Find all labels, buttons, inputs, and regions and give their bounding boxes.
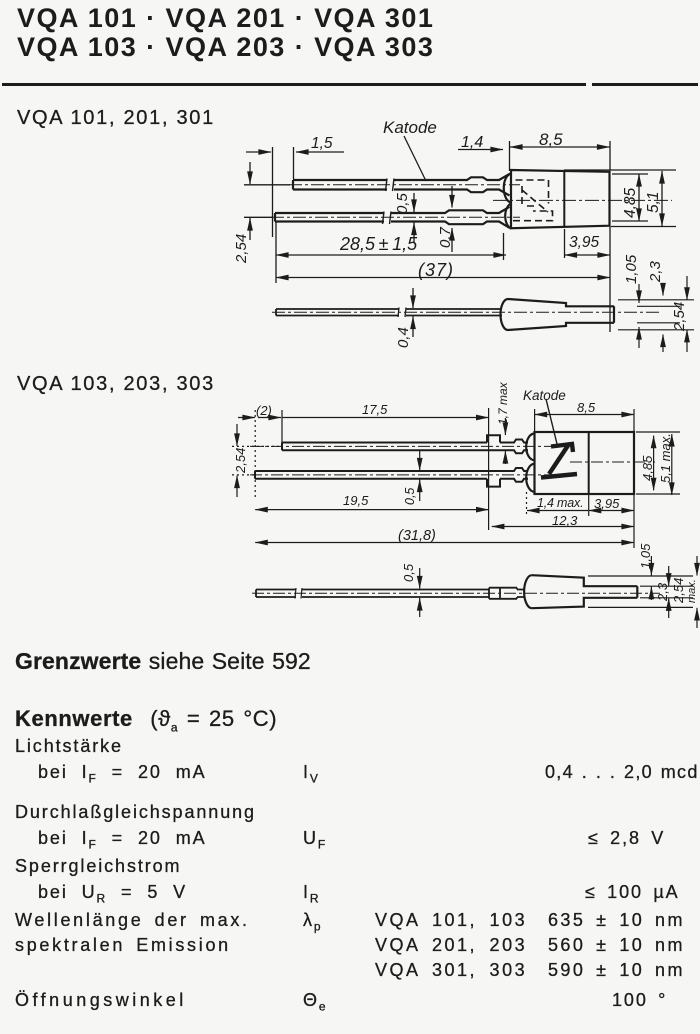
svg-text:1,05: 1,05 (623, 254, 640, 284)
svg-text:(31,8): (31,8) (398, 528, 436, 544)
svg-text:max.: max. (686, 579, 698, 603)
svg-text:2,54: 2,54 (233, 448, 248, 474)
svg-text:17,5: 17,5 (362, 402, 388, 417)
svg-text:(2): (2) (256, 403, 272, 418)
svg-text:8,5: 8,5 (539, 130, 563, 149)
svg-text:1,05: 1,05 (638, 543, 653, 569)
svg-text:(37): (37) (418, 260, 454, 280)
svg-text:19,5: 19,5 (343, 493, 369, 508)
svg-text:3,95: 3,95 (594, 496, 620, 511)
svg-text:0,5: 0,5 (394, 192, 411, 214)
svg-text:Katode: Katode (523, 388, 566, 403)
svg-text:0,4: 0,4 (395, 327, 412, 348)
svg-text:2,3: 2,3 (655, 582, 670, 602)
svg-text:1,4 max.: 1,4 max. (537, 496, 583, 510)
svg-text:2,54: 2,54 (671, 578, 686, 604)
svg-text:2,54: 2,54 (671, 302, 688, 332)
svg-text:5,1: 5,1 (645, 191, 662, 213)
svg-text:5,1 max.: 5,1 max. (658, 433, 673, 483)
svg-text:1,4: 1,4 (461, 134, 483, 151)
svg-text:0,5: 0,5 (403, 488, 417, 505)
svg-text:2,3: 2,3 (647, 260, 664, 283)
svg-text:3,95: 3,95 (569, 234, 600, 251)
svg-text:8,5: 8,5 (577, 400, 596, 415)
svg-text:Katode: Katode (383, 118, 437, 137)
svg-text:0,7: 0,7 (437, 226, 454, 248)
svg-text:12,3: 12,3 (552, 513, 578, 528)
svg-text:1,7 max: 1,7 max (496, 381, 510, 425)
svg-text:1,5: 1,5 (311, 135, 333, 152)
svg-text:4,85: 4,85 (622, 187, 639, 218)
svg-text:4,85: 4,85 (640, 455, 655, 481)
svg-text:0,5: 0,5 (401, 563, 416, 582)
svg-text:2,54: 2,54 (233, 234, 250, 264)
svg-text:28,5 ± 1,5: 28,5 ± 1,5 (339, 234, 418, 254)
